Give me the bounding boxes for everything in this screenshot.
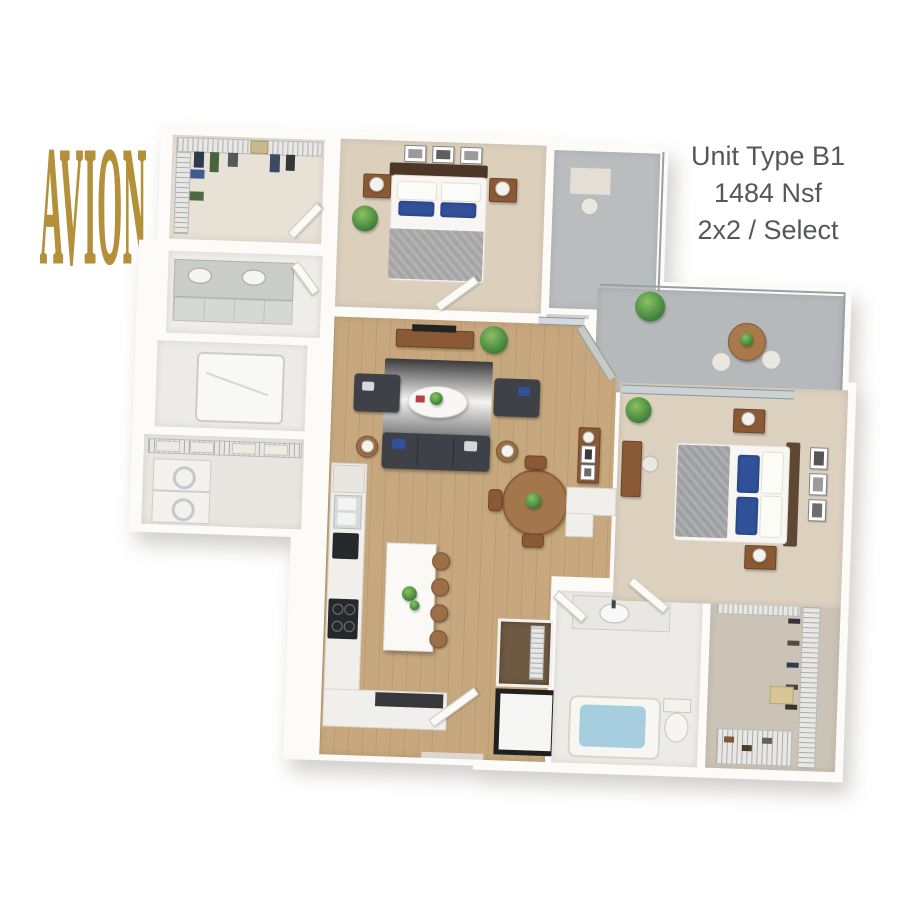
bed1-pillow (397, 181, 438, 201)
bed1-accent-pillow (398, 201, 435, 217)
leaning-art (580, 464, 596, 481)
dining-chair (522, 533, 544, 548)
living-window (538, 317, 584, 327)
bed2-pillow (761, 451, 784, 494)
dining-chair (488, 489, 503, 511)
bed1-duvet (388, 228, 484, 281)
bathtub (567, 695, 661, 760)
built-in-cabinet (565, 513, 594, 538)
dryer (151, 490, 210, 524)
hanging-clothes (194, 151, 205, 167)
shelf-basket (190, 441, 214, 453)
shower-2 (493, 688, 557, 756)
hanging-clothes (228, 153, 238, 167)
hanging-clothes (785, 704, 797, 709)
kitchen-island (383, 542, 437, 652)
floor-plan (121, 124, 871, 789)
closet2-basket (769, 686, 794, 705)
bed2-pillow (759, 495, 782, 538)
wall-art (432, 146, 455, 164)
shoes (742, 745, 752, 751)
avion-logo: AVION (40, 122, 147, 290)
refrigerator (332, 464, 365, 493)
stove-cooktop (327, 598, 358, 639)
dishwasher (332, 533, 359, 560)
wall-art (404, 145, 427, 163)
pantry (496, 618, 554, 688)
closet2-shoe-rack (715, 728, 792, 767)
hanging-clothes (210, 152, 220, 172)
bed2-duvet (675, 445, 730, 539)
hanging-clothes (190, 169, 204, 178)
bed1-accent-pillow (440, 202, 477, 218)
hanging-clothes (286, 155, 296, 171)
flyer-page: { "logo": { "text": "AVION", "color": "#… (0, 0, 900, 900)
shoes (724, 736, 734, 742)
coffee-table-book (416, 395, 425, 402)
wall-art (809, 473, 828, 496)
kitchen-sink (333, 495, 362, 530)
toilet-tank (663, 698, 691, 713)
hanging-clothes (788, 618, 800, 623)
armchair (353, 373, 400, 413)
bed1-pillow (441, 182, 482, 202)
hanging-clothes (787, 640, 799, 645)
wall-art (460, 147, 483, 165)
wall-art (810, 447, 829, 470)
vanity-drawers (172, 297, 293, 325)
dining-chair (524, 455, 546, 470)
kitchen-dark-countertop (375, 692, 443, 708)
bed2-accent-pillow (735, 497, 758, 536)
hanging-clothes (190, 191, 204, 200)
washer (152, 458, 211, 492)
hanging-clothes (270, 154, 281, 172)
closet1-shelf-left (173, 152, 191, 234)
bed2-accent-pillow (737, 455, 760, 494)
shoes (762, 738, 772, 744)
armchair (493, 378, 540, 418)
walk-in-shower (195, 352, 285, 425)
balcony-desk (569, 167, 612, 196)
wall-art (808, 499, 827, 522)
bedroom2-desk (620, 441, 642, 498)
shelf-basket (264, 444, 288, 456)
tv (412, 324, 456, 333)
hanging-clothes (787, 662, 799, 667)
closet1-storage-box (250, 140, 268, 154)
sofa (381, 432, 490, 472)
shelf-basket (232, 443, 256, 455)
leaning-art (581, 445, 597, 464)
shelf-basket (156, 440, 180, 452)
